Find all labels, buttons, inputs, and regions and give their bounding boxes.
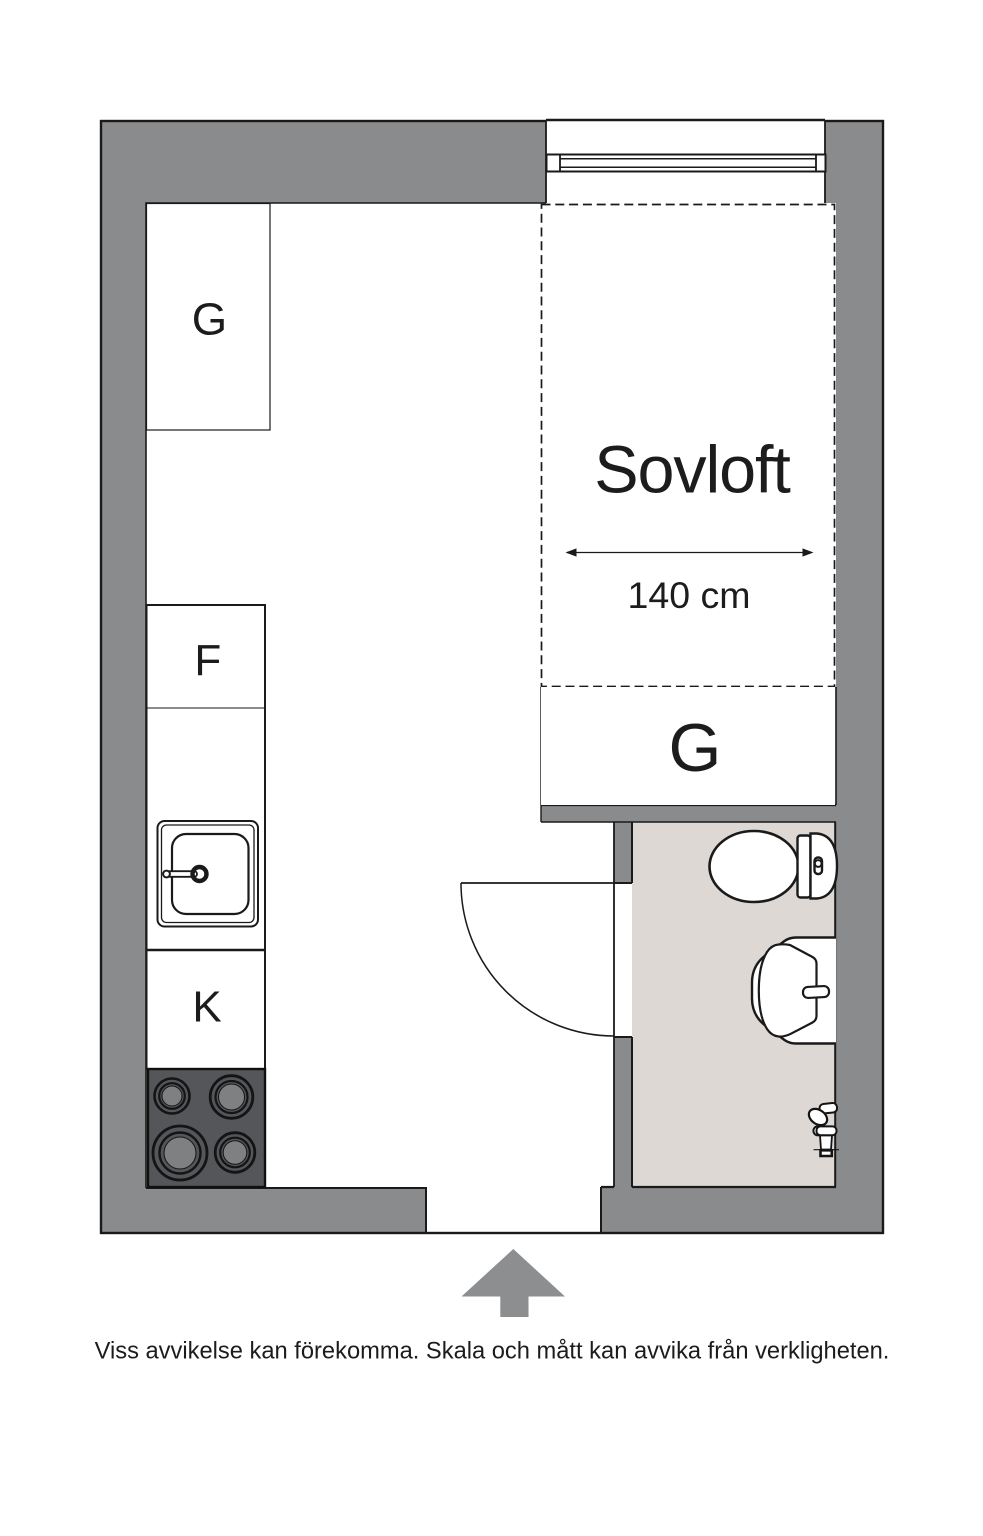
- svg-text:Sovloft: Sovloft: [594, 434, 790, 508]
- svg-text:F: F: [194, 636, 221, 685]
- svg-text:K: K: [192, 983, 221, 1032]
- svg-text:G: G: [669, 710, 722, 786]
- svg-text:140 cm: 140 cm: [628, 574, 751, 616]
- svg-text:Viss avvikelse kan förekomma.: Viss avvikelse kan förekomma. Skala och …: [95, 1338, 890, 1365]
- svg-text:G: G: [192, 294, 227, 345]
